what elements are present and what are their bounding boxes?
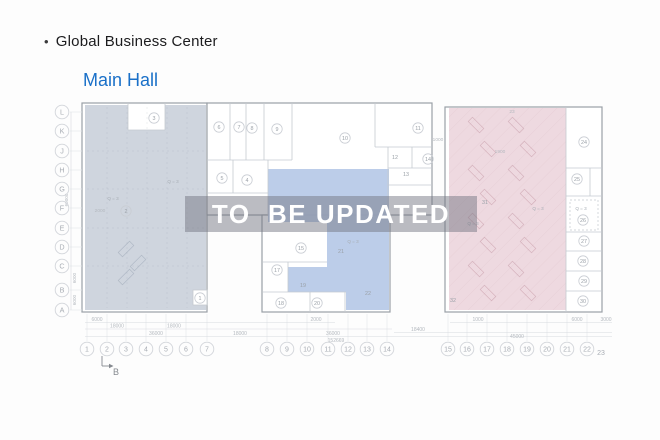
watermark-band: TO BE UPDATED (185, 196, 477, 232)
room-label: 2 (125, 209, 128, 215)
axis-col-label: 10 (303, 347, 311, 354)
dim-text: 18400 (411, 327, 425, 333)
axis-col-label: 8 (265, 347, 269, 354)
dim-text: 6000 (72, 272, 77, 283)
axis-row-label: H (59, 166, 64, 175)
room-label: 5 (221, 176, 224, 182)
axis-col-label: 13 (363, 347, 371, 354)
axis-row-label: G (59, 185, 65, 194)
room-label: 24 (581, 140, 587, 146)
axis-col-label: 14 (383, 347, 391, 354)
axis-row-label: E (60, 224, 65, 233)
room-label: 9 (276, 127, 279, 133)
watermark-text: TO BE UPDATED (212, 201, 450, 227)
room-label: 28 (580, 259, 586, 265)
axis-col-label: 18 (503, 347, 511, 354)
room-label: 18 (278, 301, 284, 307)
room-label: 17 (274, 268, 280, 274)
axis-col-label: 7 (205, 347, 209, 354)
room-label: 25 (574, 177, 580, 183)
axis-col-label: 12 (344, 347, 352, 354)
dim-text: 36000 (149, 331, 163, 337)
room-label: 4 (246, 178, 249, 184)
plan-dim-text: 23 (509, 109, 515, 115)
axis-row-label: C (59, 262, 64, 271)
axis-col-label: 3 (124, 347, 128, 354)
axis-col-label: 9 (285, 347, 289, 354)
axis-row-label: A (60, 306, 65, 315)
axis-row-label: J (60, 147, 64, 156)
axis-col-label: 23 (597, 350, 605, 357)
room-label: 6 (218, 125, 221, 131)
room-label: 31 (482, 200, 488, 206)
axis-col-label: 17 (483, 347, 491, 354)
room-label: 14 (425, 157, 431, 163)
dim-text: 152669 (328, 338, 345, 344)
axis-col-label: 16 (463, 347, 471, 354)
room-label: 3 (153, 116, 156, 122)
axis-col-label: 2 (105, 347, 109, 354)
room-label: 32 (450, 298, 456, 304)
section-marker-label: B (113, 367, 119, 377)
dim-text: 6000 (91, 317, 102, 323)
room-label: 22 (365, 291, 371, 297)
axis-row-label: K (60, 127, 65, 136)
dim-text: 3000 (600, 317, 611, 323)
axis-row-label: L (60, 108, 64, 117)
q-label: Q = 3 (107, 196, 119, 201)
dim-text: 2000 (310, 317, 321, 323)
room-label: 20 (314, 301, 320, 307)
axis-row-label: B (60, 286, 65, 295)
dim-text: 6000 (72, 294, 77, 305)
axis-row-label: D (59, 243, 64, 252)
dim-text: 18000 (167, 324, 181, 330)
dim-text: 18000 (110, 324, 124, 330)
room-label: 10 (342, 136, 348, 142)
room-label: 26 (580, 218, 586, 224)
axis-col-label: 11 (324, 347, 331, 354)
room-label: 30 (580, 299, 586, 305)
plan-dim-text: 1900 (495, 149, 506, 155)
axis-col-label: 19 (523, 347, 531, 354)
room-label: 8 (251, 126, 254, 132)
axis-col-label: 5 (164, 347, 168, 354)
axis-col-label: 22 (583, 347, 591, 354)
room-label: 29 (581, 279, 587, 285)
plan-dim-text: 2000 (95, 208, 106, 214)
room-label: 27 (581, 239, 587, 245)
dim-text: 6000 (571, 317, 582, 323)
axis-col-label: 20 (543, 347, 551, 354)
room-label: 11 (415, 126, 421, 132)
room-label: 19 (300, 283, 306, 289)
room-label: 1 (199, 296, 202, 302)
dim-text: 45000 (510, 334, 524, 340)
axis-col-label: 15 (444, 347, 452, 354)
q-label: Q = 3 (575, 206, 587, 211)
room-label: 15 (298, 246, 304, 252)
room-label: 21 (338, 249, 344, 255)
q-label: Q = 3 (347, 239, 359, 244)
axis-col-label: 6 (184, 347, 188, 354)
room-label: 12 (392, 155, 398, 161)
axis-col-label: 1 (85, 347, 89, 354)
axis-col-label: 21 (563, 347, 571, 354)
dim-text: 18000 (233, 331, 247, 337)
dim-text: 1000 (472, 317, 483, 323)
plan-dim-text: 1000 (433, 137, 444, 143)
q-label: Q = 3 (532, 206, 544, 211)
q-label: Q = 3 (167, 179, 179, 184)
dim-text: 36000 (326, 331, 340, 337)
room-label: 7 (238, 125, 241, 131)
axis-row-label: F (60, 204, 65, 213)
axis-col-label: 4 (144, 347, 148, 354)
room-label: 13 (403, 172, 409, 178)
